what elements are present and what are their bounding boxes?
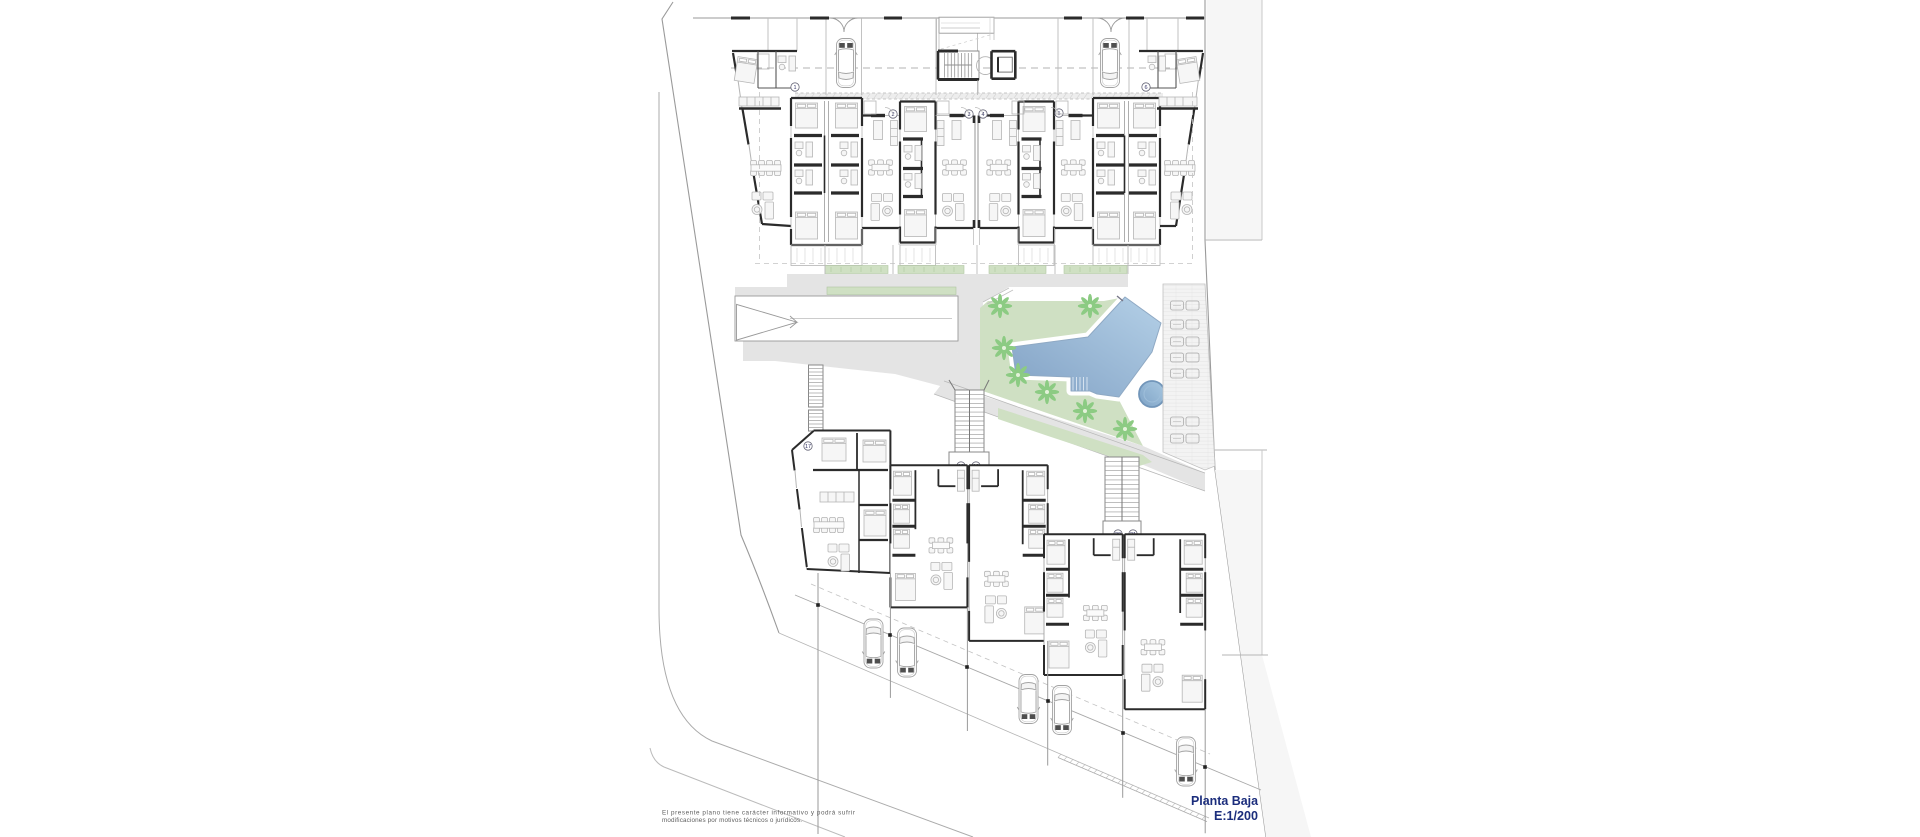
svg-text:modificaciones por motivos téc: modificaciones por motivos técnicos o ju… [662, 817, 802, 824]
svg-text:17: 17 [805, 444, 811, 450]
svg-text:1: 1 [793, 85, 796, 91]
svg-text:E:1/200: E:1/200 [1214, 808, 1258, 823]
svg-text:Planta Baja: Planta Baja [1191, 793, 1259, 808]
svg-text:6: 6 [1144, 85, 1147, 91]
svg-text:El presente plano tiene caráct: El presente plano tiene carácter informa… [662, 810, 855, 817]
